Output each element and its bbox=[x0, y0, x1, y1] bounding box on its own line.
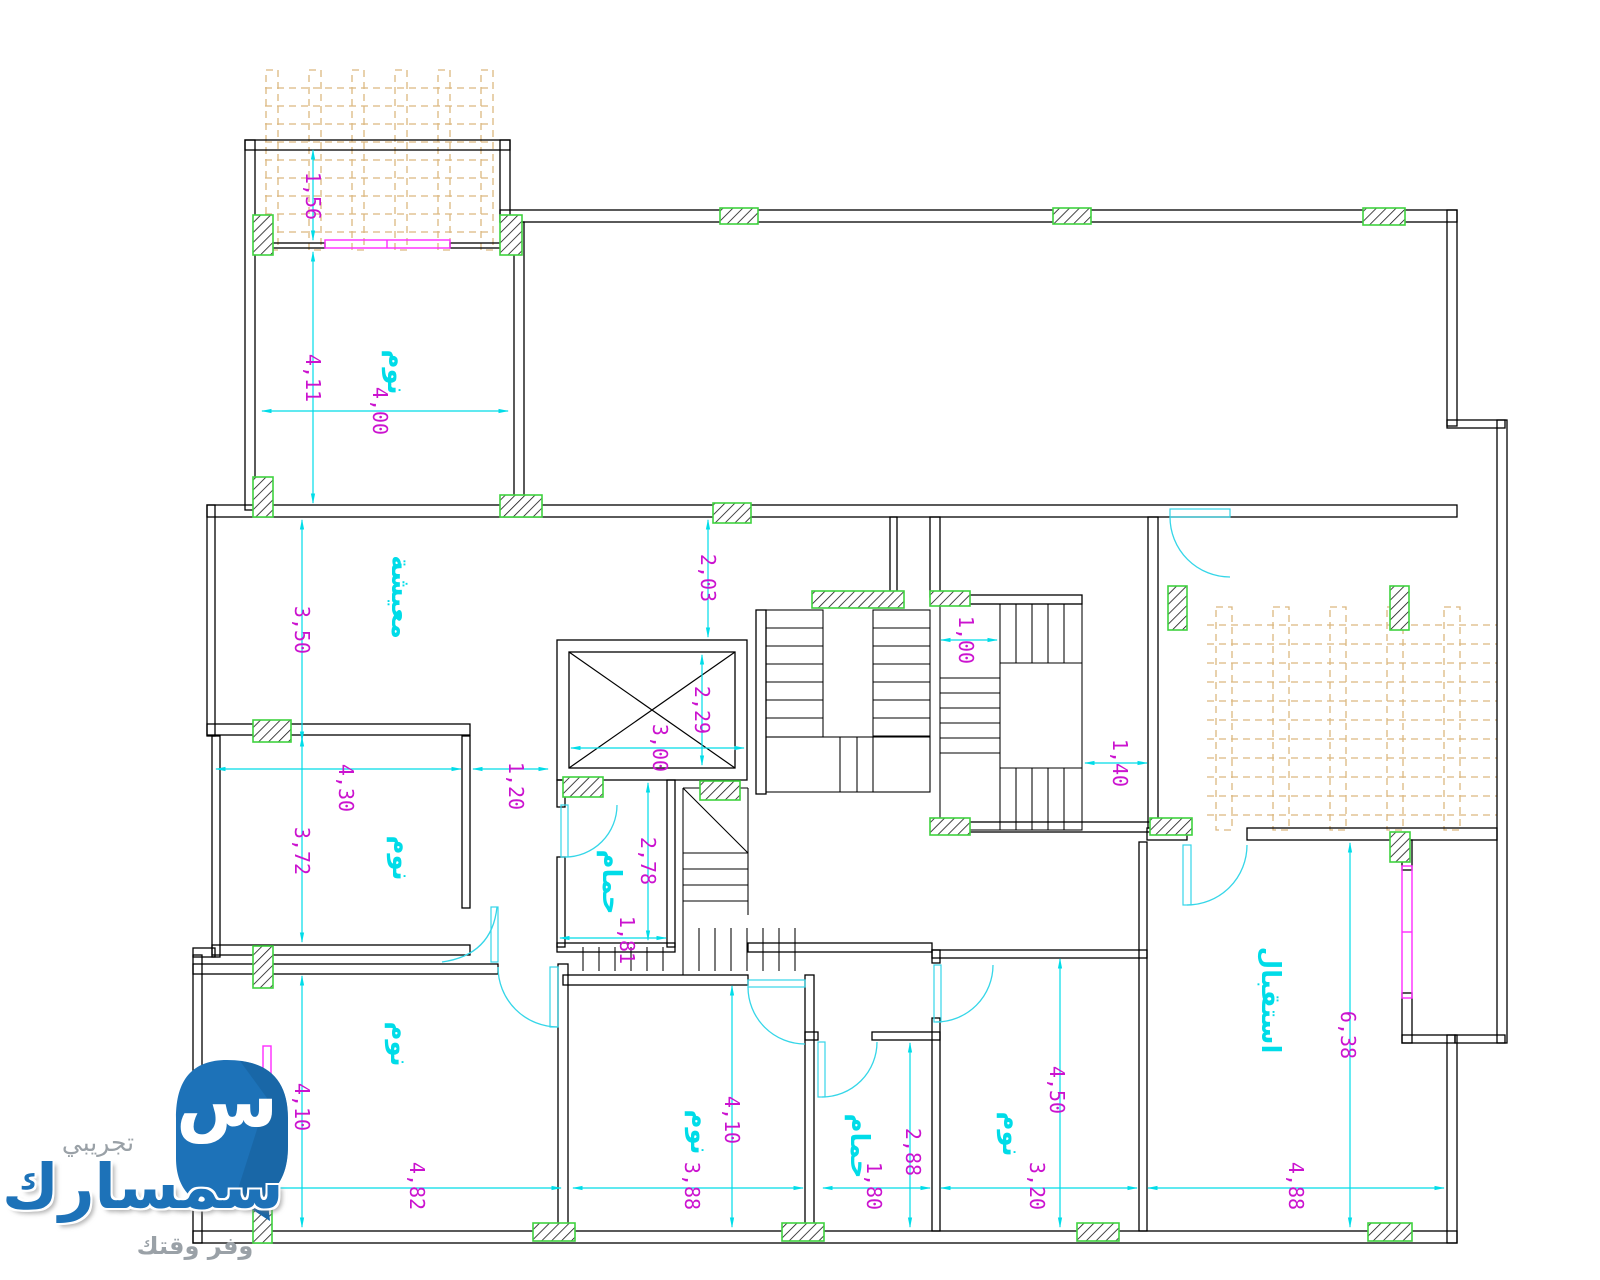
dimension-text: 4,10 bbox=[290, 1083, 314, 1131]
dimension-text: 4,10 bbox=[720, 1096, 744, 1144]
dimension-text: 1,20 bbox=[504, 762, 528, 810]
room-label: نوم bbox=[384, 1021, 414, 1066]
windows-layer bbox=[263, 240, 1412, 1082]
dimension-text: 1,56 bbox=[301, 172, 325, 220]
pergola-top-left bbox=[265, 70, 493, 250]
dimension-text: 3,88 bbox=[680, 1162, 704, 1210]
room-label: حمام bbox=[844, 1114, 874, 1179]
pergola-right bbox=[1207, 607, 1497, 830]
room-label: نوم bbox=[996, 1111, 1026, 1156]
dimension-text: 4,11 bbox=[301, 354, 325, 402]
room-label: استقبال bbox=[1255, 947, 1285, 1054]
walls-layer bbox=[193, 140, 1507, 1243]
dimension-text: 1,40 bbox=[1108, 739, 1132, 787]
dimension-text: 2,03 bbox=[696, 554, 720, 602]
room-label: نوم bbox=[381, 349, 411, 394]
dimension-text: 3,72 bbox=[290, 827, 314, 875]
columns-layer bbox=[253, 208, 1412, 1243]
room-label: نوم bbox=[684, 1109, 714, 1154]
dimension-text: 2,88 bbox=[901, 1128, 925, 1176]
floor-plan-page: 1,564,114,003,502,032,293,001,001,401,20… bbox=[0, 0, 1600, 1280]
dimension-text: 3,00 bbox=[648, 724, 672, 772]
dimension-text: 4,50 bbox=[1045, 1066, 1069, 1114]
dimension-text: 4,30 bbox=[334, 764, 358, 812]
dimension-text: 1,00 bbox=[954, 616, 978, 664]
floor-plan-canvas: 1,564,114,003,502,032,293,001,001,401,20… bbox=[0, 0, 1600, 1280]
dimension-text: 1,81 bbox=[615, 916, 639, 964]
room-label: نوم bbox=[386, 835, 416, 880]
dimension-text: 3,50 bbox=[290, 606, 314, 654]
dimension-text: 2,29 bbox=[690, 686, 714, 734]
dimension-text: 3,20 bbox=[1025, 1162, 1049, 1210]
dimension-text: 2,78 bbox=[636, 837, 660, 885]
dimension-text: 4,82 bbox=[405, 1162, 429, 1210]
dimension-text: 4,88 bbox=[1284, 1162, 1308, 1210]
dimension-text: 6,38 bbox=[1336, 1011, 1360, 1059]
room-label: حمام bbox=[596, 850, 626, 915]
room-label: معيشة bbox=[385, 555, 415, 639]
